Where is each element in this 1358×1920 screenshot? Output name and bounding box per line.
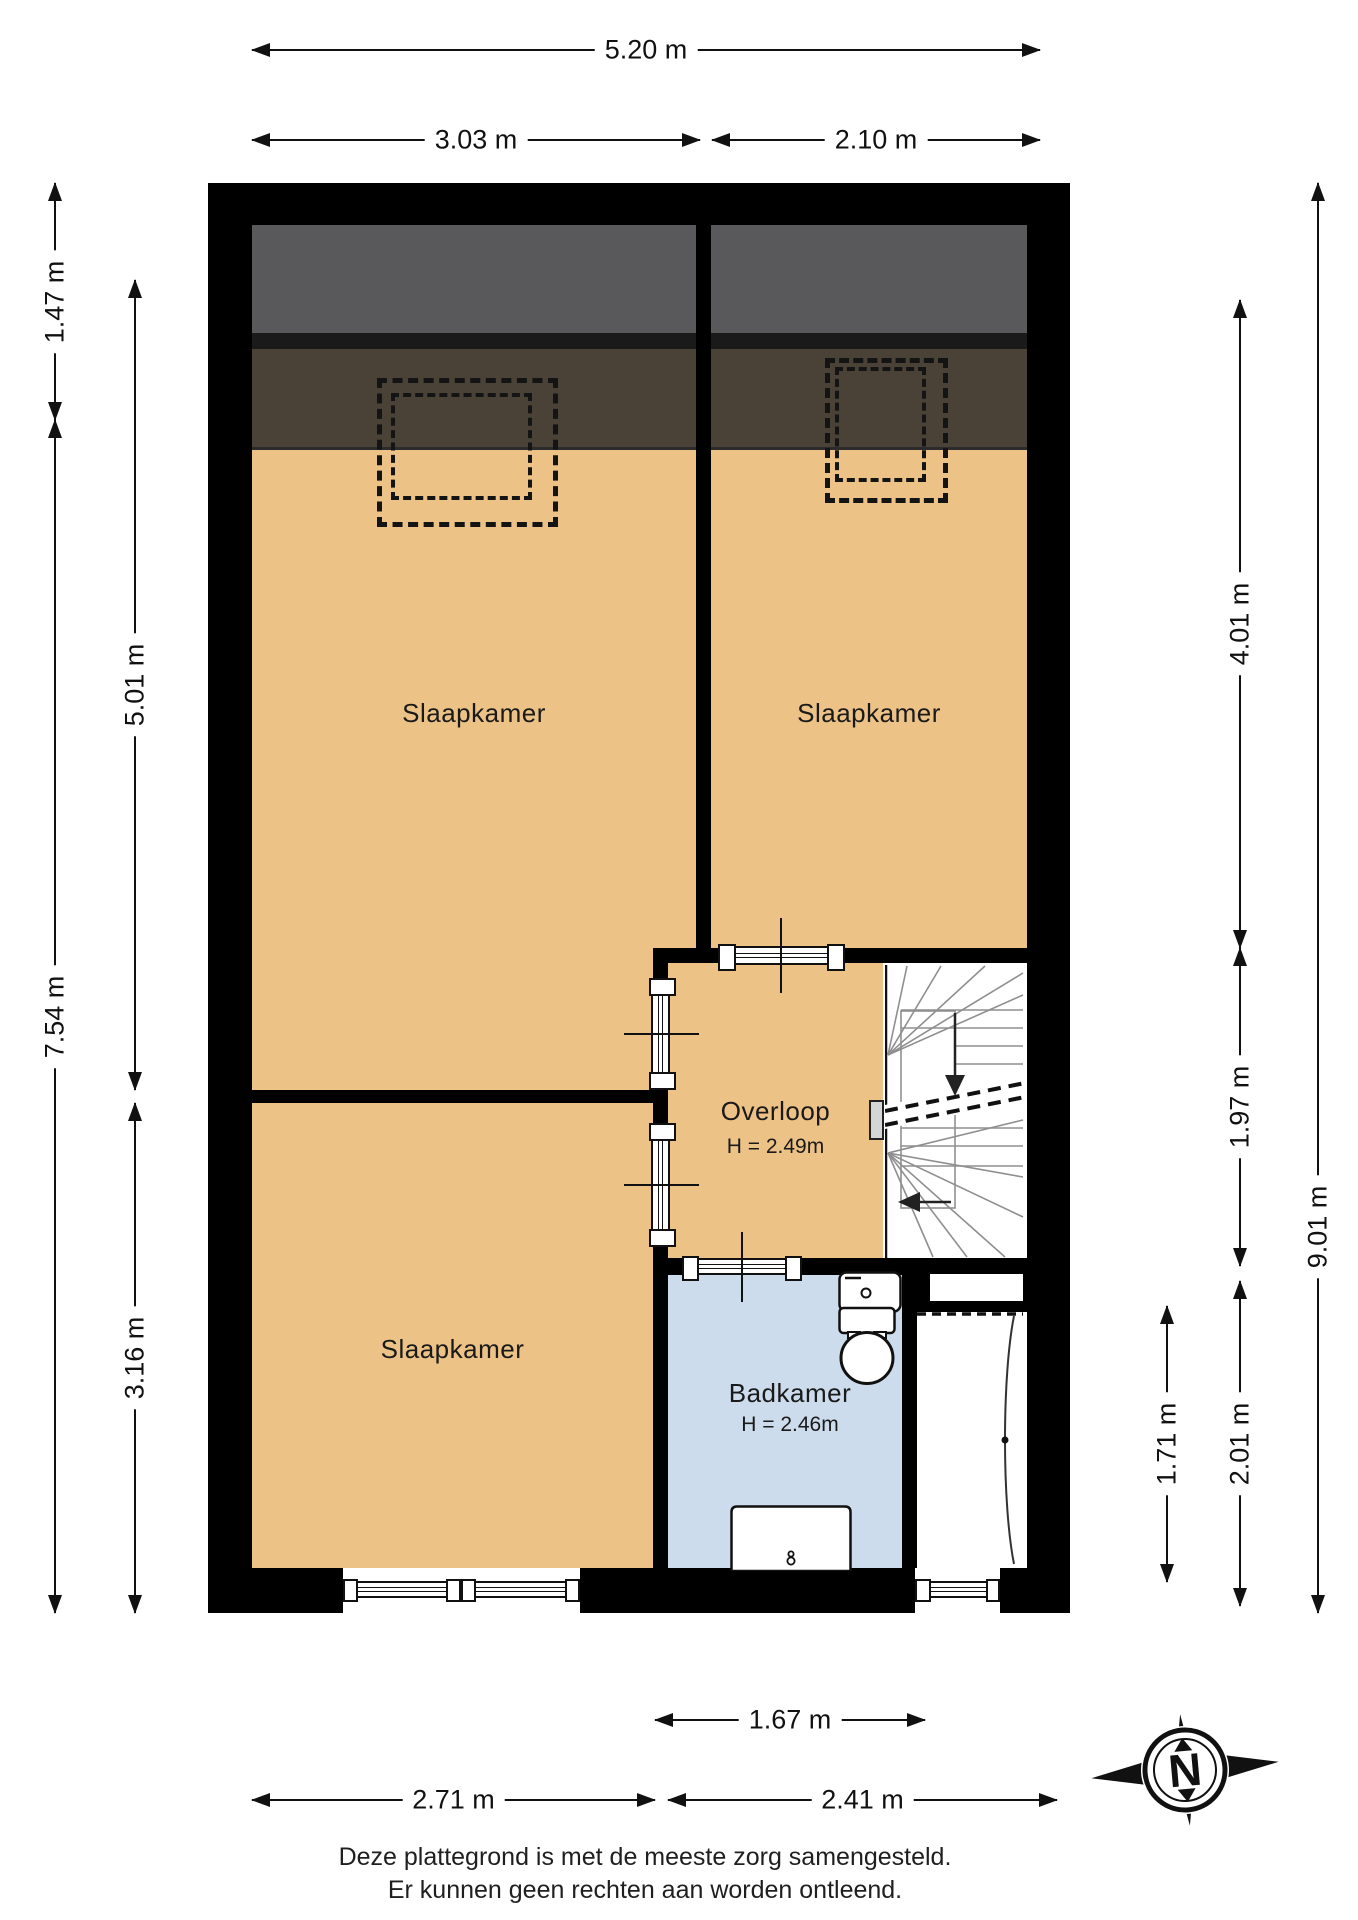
bathtub-icon (917, 1312, 1023, 1568)
shower-tray-icon (730, 1505, 852, 1571)
dim-right-inner-top: 4.01 m (1220, 300, 1260, 948)
door-center-tick (780, 918, 782, 993)
dim-label: 1.67 m (739, 1704, 842, 1737)
window-bedroom-bottom-2 (461, 1581, 580, 1598)
dim-label: 5.20 m (595, 34, 698, 67)
roof-band-gray (252, 225, 1027, 333)
dim-label: 4.01 m (1224, 573, 1257, 676)
window-bottom-right (915, 1581, 1000, 1598)
dim-right-bath-side: 1.71 m (1147, 1306, 1187, 1582)
dim-bottom-right: 2.41 m (668, 1780, 1057, 1820)
door-center-tick (741, 1232, 743, 1302)
dim-top-left: 3.03 m (252, 120, 700, 160)
label-bedroom-bottom: Slaapkamer (252, 1334, 653, 1365)
dim-bottom-left: 2.71 m (252, 1780, 655, 1820)
toilet-icon (838, 1306, 896, 1386)
dim-label: 2.01 m (1224, 1392, 1257, 1495)
wall-landing-top-b (845, 948, 1027, 963)
door-center-tick (624, 1033, 699, 1035)
dim-left-outer-top: 1.47 m (35, 183, 75, 420)
dim-bottom-bath: 1.67 m (655, 1700, 925, 1740)
dim-label: 7.54 m (39, 965, 72, 1068)
dim-label: 9.01 m (1302, 1176, 1335, 1279)
compass-north-label: N (1166, 1743, 1204, 1798)
dim-top-right: 2.10 m (712, 120, 1040, 160)
dim-right-inner-mid: 1.97 m (1220, 948, 1260, 1266)
dim-top-total: 5.20 m (252, 30, 1040, 70)
stairs-icon (885, 965, 1025, 1258)
wall-exterior-left (208, 183, 252, 1613)
wall-bedroom-divider (696, 225, 711, 963)
dim-left-outer-bottom: 7.54 m (35, 420, 75, 1613)
skylight-right-icon (825, 358, 948, 503)
dim-label: 2.41 m (811, 1784, 914, 1817)
disclaimer-line-2: Er kunnen geen rechten aan worden ontlee… (0, 1876, 1290, 1905)
dim-label: 3.03 m (425, 124, 528, 157)
dim-label: 1.47 m (39, 250, 72, 353)
dim-left-inner-bottom: 3.16 m (115, 1103, 155, 1613)
dim-label: 2.71 m (402, 1784, 505, 1817)
dim-label: 3.16 m (119, 1307, 152, 1410)
wall-exterior-top (208, 183, 1070, 225)
label-bedroom-top-right: Slaapkamer (711, 698, 1027, 729)
dim-right-outer: 9.01 m (1298, 183, 1338, 1613)
dim-right-inner-bottom: 2.01 m (1220, 1281, 1260, 1606)
wall-bathroom-top-a (653, 1258, 682, 1275)
wall-left-bedrooms (208, 1090, 668, 1103)
label-landing: Overloop (668, 1096, 883, 1127)
compass-north-icon: N (1078, 1682, 1291, 1859)
dim-left-inner-top: 5.01 m (115, 280, 155, 1090)
dim-label: 5.01 m (119, 634, 152, 737)
door-center-tick (624, 1184, 699, 1186)
dim-label: 1.97 m (1224, 1056, 1257, 1159)
wall-exterior-right (1027, 183, 1070, 1613)
dim-label: 1.71 m (1151, 1393, 1184, 1496)
skylight-left-icon (377, 378, 558, 527)
window-bedroom-bottom-1 (343, 1581, 461, 1598)
label-landing-height: H = 2.49m (668, 1135, 883, 1159)
label-bathroom-height: H = 2.46m (668, 1413, 912, 1437)
dim-label: 2.10 m (825, 124, 928, 157)
roof-band-divider-line (252, 333, 1027, 349)
label-bedroom-top-left: Slaapkamer (252, 698, 696, 729)
label-bathroom: Badkamer (668, 1378, 912, 1409)
floorplan-page: Slaapkamer Slaapkamer Overloop H = 2.49m… (0, 0, 1358, 1920)
wall-niche-slot (930, 1274, 1023, 1301)
